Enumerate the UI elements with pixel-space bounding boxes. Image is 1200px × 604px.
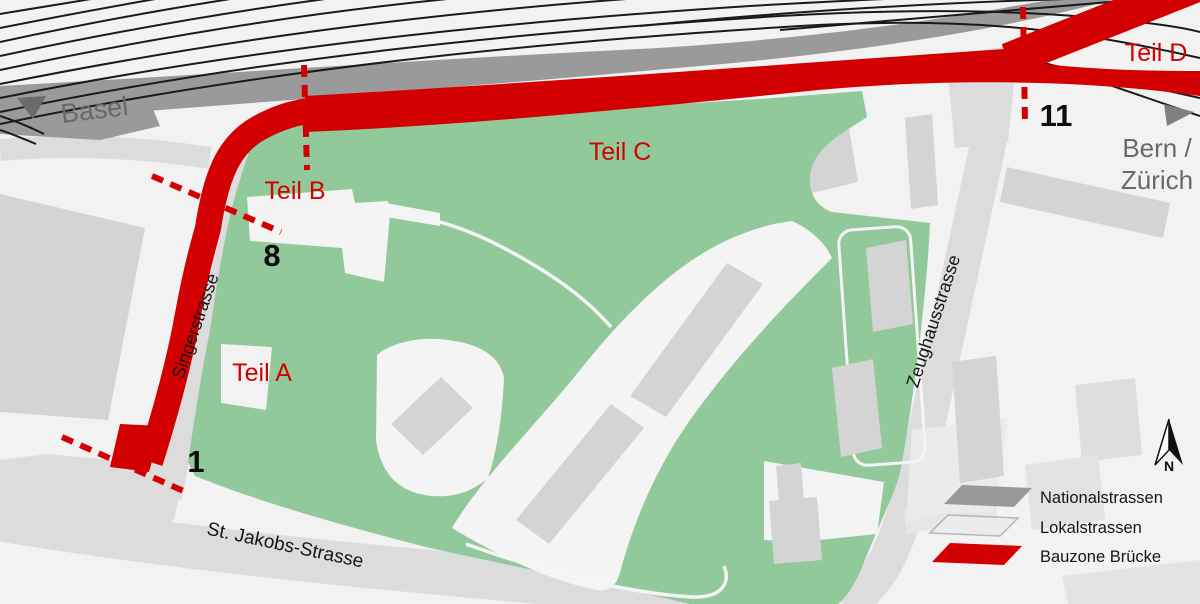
building (1075, 378, 1142, 462)
marker-11: 11 (1040, 98, 1073, 133)
zone-label-teil-a: Teil A (232, 359, 292, 387)
bern-zurich-label-line2: Zürich (1121, 165, 1193, 195)
building (866, 240, 913, 332)
zone-label-teil-d: Teil D (1125, 39, 1188, 67)
zone-label-teil-b: Teil B (264, 177, 325, 205)
map-canvas: Basel Bern / Zürich Teil A Teil B Teil C… (0, 0, 1200, 604)
building (769, 497, 822, 564)
marker-1: 1 (187, 444, 204, 479)
north-label: N (1164, 458, 1174, 474)
legend-label-bauzone: Bauzone Brücke (1040, 548, 1161, 566)
bern-zurich-label-line1: Bern / (1122, 133, 1192, 163)
road-branch-left (0, 147, 210, 158)
building (952, 356, 1004, 483)
zone-label-teil-c: Teil C (589, 138, 652, 166)
legend-label-lokalstrassen: Lokalstrassen (1040, 519, 1142, 537)
map-stage: Basel Bern / Zürich Teil A Teil B Teil C… (0, 0, 1200, 604)
legend-label-nationalstrassen: Nationalstrassen (1040, 489, 1163, 507)
marker-8: 8 (263, 238, 280, 273)
legend: Nationalstrassen Lokalstrassen Bauzone B… (930, 485, 1163, 566)
